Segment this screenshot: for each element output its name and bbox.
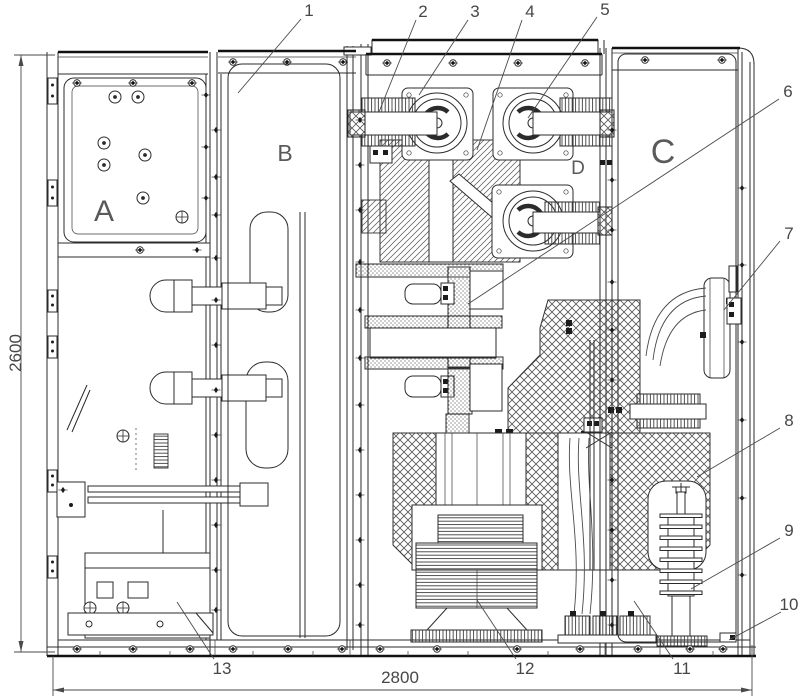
callout-11: 11 [673, 659, 691, 678]
compartment-label-c: C [651, 133, 676, 171]
callout-5: 5 [600, 0, 609, 19]
dimension-width-label: 2800 [381, 668, 419, 687]
compartment-label-d: D [571, 158, 585, 179]
compartment-label-b: B [277, 140, 292, 166]
callout-13: 13 [213, 659, 232, 678]
callout-9: 9 [784, 521, 793, 540]
compartment-a-busbar-panel [58, 78, 211, 257]
dimension-height-label: 2600 [6, 334, 25, 372]
gas-tank-lid [372, 40, 598, 54]
compartment-d-contents [348, 88, 737, 646]
callout-1: 1 [304, 1, 313, 20]
callout-10: 10 [780, 595, 799, 614]
top-rails [58, 40, 740, 75]
callout-8: 8 [784, 411, 793, 430]
callout-6: 6 [783, 82, 792, 101]
mechanism-box [68, 553, 213, 638]
rear-wall-fastener-strips [48, 78, 57, 578]
callout-3: 3 [470, 2, 479, 21]
dimension-width: 2800 [53, 645, 752, 696]
callout-12: 12 [516, 659, 535, 678]
molded-insulation-upper [508, 300, 640, 433]
isolating-contact-upper [150, 280, 282, 312]
cable-termination [630, 266, 737, 428]
callout-2: 2 [418, 2, 427, 21]
spring [154, 434, 168, 468]
bus-support-column [356, 264, 503, 434]
cable-cts [558, 611, 656, 643]
cable-elbow [646, 288, 706, 366]
operating-mechanism-area [57, 385, 268, 638]
compartment-label-a: A [94, 195, 114, 228]
engineering-drawing-sheet: 2600 2800 1 2 3 4 5 6 7 8 9 10 11 12 1 [0, 0, 805, 700]
callout-4: 4 [525, 2, 534, 21]
switchgear-sectional-view: 2600 2800 1 2 3 4 5 6 7 8 9 10 11 12 1 [0, 0, 805, 700]
callout-7: 7 [784, 224, 793, 243]
